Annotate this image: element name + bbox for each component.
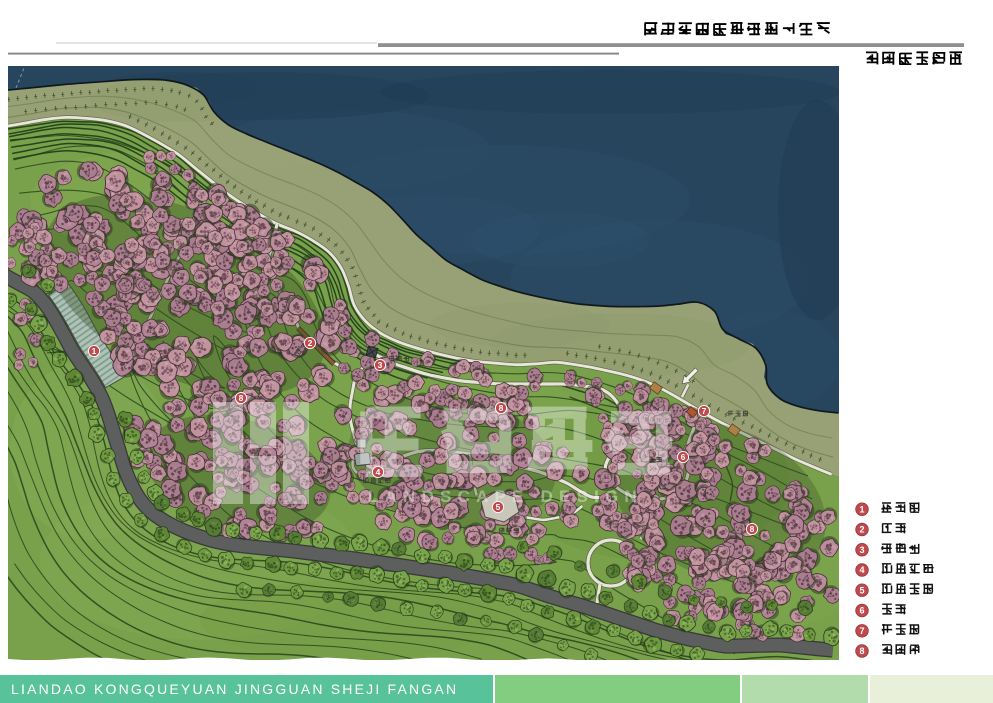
svg-text:1: 1 — [92, 346, 97, 356]
svg-text:5: 5 — [859, 585, 864, 595]
svg-text:5: 5 — [496, 502, 501, 512]
svg-text:2: 2 — [859, 525, 864, 535]
svg-text:3: 3 — [859, 545, 864, 555]
svg-text:8: 8 — [859, 646, 864, 656]
svg-text:6: 6 — [681, 452, 686, 462]
svg-text:7: 7 — [859, 626, 864, 636]
svg-text:LIANDAO KONGQUEYUAN JINGGUAN S: LIANDAO KONGQUEYUAN JINGGUAN SHEJI FANGA… — [11, 681, 458, 697]
svg-text:2: 2 — [308, 338, 313, 348]
svg-text:7: 7 — [702, 406, 707, 416]
svg-text:8: 8 — [499, 403, 504, 413]
svg-text:8: 8 — [239, 393, 244, 403]
svg-text:4: 4 — [376, 467, 381, 477]
svg-text:1: 1 — [859, 504, 864, 514]
svg-text:6: 6 — [859, 606, 864, 616]
svg-text:LANDSCAPE DESIGN: LANDSCAPE DESIGN — [368, 487, 643, 506]
svg-text:3: 3 — [378, 360, 383, 370]
svg-text:8: 8 — [750, 524, 755, 534]
svg-text:4: 4 — [859, 565, 864, 575]
